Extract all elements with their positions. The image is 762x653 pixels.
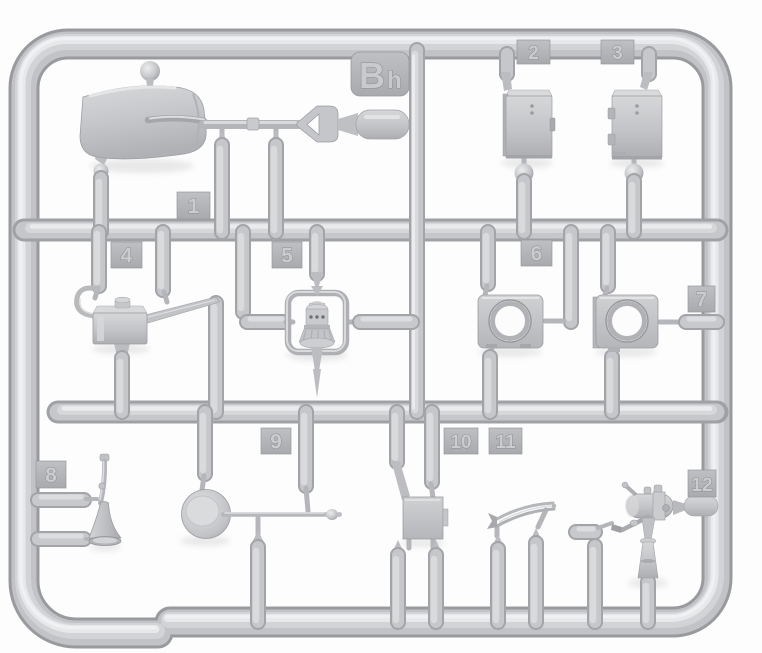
runner-can-spout (161, 232, 167, 302)
part-tag-1-number: 1 (188, 195, 200, 218)
part-tag-6-number: 6 (531, 243, 543, 266)
runner-plate7-top (605, 232, 608, 295)
runner-bugle-stubs (38, 497, 97, 539)
part-tag-10: 10 (444, 428, 478, 454)
runner-pan-left (202, 412, 205, 490)
part-tag-4: 4 (111, 242, 142, 268)
part-shovel (80, 86, 409, 159)
part-tag-7: 7 (688, 286, 715, 312)
part-tag-6: 6 (521, 240, 552, 266)
runner-pan-bottom (251, 518, 265, 622)
runner-spout-tip (214, 299, 218, 412)
runner-lantern-top (311, 232, 323, 292)
part-box-3 (608, 90, 662, 160)
runner-lantern-right (347, 319, 412, 322)
part-tag-2: 2 (517, 40, 550, 64)
sprue-photo: 1 2 3 4 5 6 7 8 9 10 11 12 (0, 0, 762, 653)
part-tag-3: 3 (601, 40, 634, 64)
runner-plate6-top (485, 232, 488, 295)
part-frying-pan (182, 490, 343, 539)
runner-pan-right (304, 412, 308, 511)
part-flat-plate-10 (403, 497, 448, 539)
center-spine-runner (414, 50, 418, 412)
part-tag-5: 5 (272, 242, 302, 268)
part-tag-11-number: 11 (495, 432, 516, 453)
part-tag-7-number: 7 (696, 289, 708, 312)
part-tag-3-number: 3 (612, 43, 623, 64)
part-ring-plate-7 (593, 295, 658, 352)
part-tag-9-number: 9 (270, 431, 282, 454)
runner-can-bottom (114, 343, 130, 412)
sprue-label: Bh (351, 52, 409, 96)
runner-shaft-right (268, 127, 284, 232)
part-tag-9: 9 (261, 428, 291, 454)
part-tag-11: 11 (489, 428, 522, 454)
part-tag-4-number: 4 (121, 245, 133, 268)
part-box-2 (503, 90, 555, 159)
part-tag-2-number: 2 (528, 43, 539, 64)
part-oil-can (77, 288, 220, 344)
part-tag-12-number: 12 (691, 475, 712, 496)
part-tag-10-number: 10 (450, 432, 471, 453)
part-lantern (287, 286, 346, 398)
part-tag-1: 1 (177, 192, 210, 219)
runner-part11 (492, 510, 546, 622)
sprue-graphic: 1 2 3 4 5 6 7 8 9 10 11 12 (0, 0, 762, 653)
part-tag-12: 12 (688, 470, 716, 497)
runner-plate7-bottom (610, 348, 614, 412)
runner-plate6-bottom (488, 348, 492, 412)
part-tag-8-number: 8 (45, 464, 57, 487)
runner-shaft-left (214, 127, 230, 232)
runner-stub-right (660, 319, 717, 322)
part-tag-5-number: 5 (281, 245, 293, 268)
part-tag-8: 8 (36, 461, 66, 488)
part-ring-plate-6 (478, 295, 543, 349)
